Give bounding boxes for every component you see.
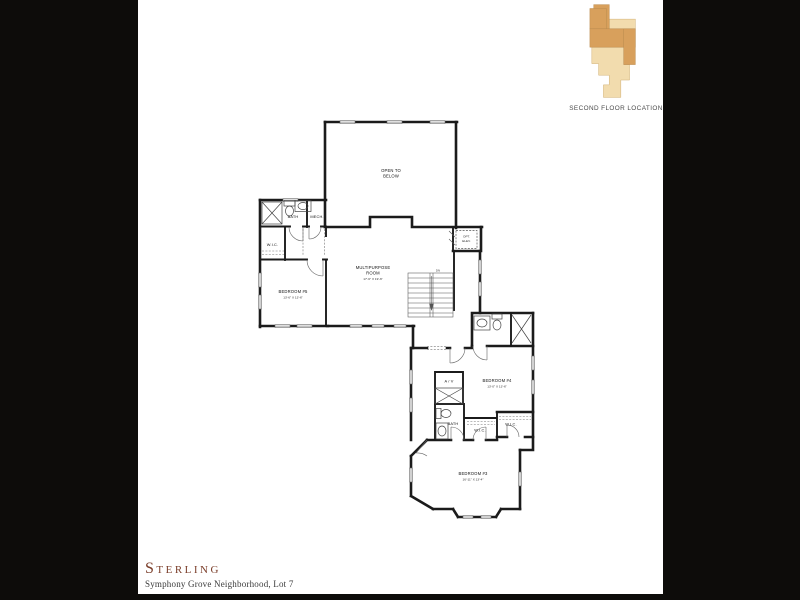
stairs-dn-label: DN [436, 269, 440, 273]
room-dim-bedroom5: 13'-6" X 13'-6" [283, 296, 303, 300]
interior-walls [260, 200, 511, 440]
room-label-bath-lower: BATH [448, 421, 459, 426]
floor-plan: OPEN TO BELOW BATH MECH. W.I.C. BEDROOM … [245, 110, 545, 530]
sink-icon [295, 201, 311, 212]
second-floor-location-key: SECOND FLOOR LOCATION [548, 2, 684, 112]
room-label-av: A / V [445, 379, 454, 384]
toilet-icon [492, 314, 502, 319]
exterior-walls [260, 122, 533, 517]
room-label-bath-upper: BATH [288, 214, 299, 219]
plan-subtitle: Symphony Grove Neighborhood, Lot 7 [145, 579, 294, 589]
room-dim-bedroom4: 13'-0" X 13'-6" [487, 385, 507, 389]
location-key-map [587, 2, 645, 102]
room-dim-bedroom3: 16'-11" X 13'-4" [462, 478, 483, 482]
room-label-open-to-below-2: BELOW [383, 174, 399, 179]
room-label-bedroom4: BEDROOM #4 [483, 378, 512, 383]
room-label-multipurpose-2: ROOM [366, 271, 380, 276]
title-block: Sterling Symphony Grove Neighborhood, Lo… [145, 560, 294, 589]
room-label-bedroom5: BEDROOM #5 [279, 289, 308, 294]
fixtures [262, 201, 531, 440]
room-label-open-to-below: OPEN TO [381, 168, 401, 173]
toilet-icon [436, 409, 441, 419]
room-label-opt-elev: OPT. [463, 235, 470, 239]
sink-icon [474, 316, 490, 330]
room-label-wic-bedroom4: W.I.C. [505, 422, 517, 427]
room-label-wic-upper: W.I.C. [267, 242, 279, 247]
shower-icon [512, 315, 531, 343]
room-dim-multipurpose: 17'-6" X 19'-6" [363, 277, 383, 281]
stairs [408, 273, 453, 317]
room-label-multipurpose: MULTIPURPOSE [356, 265, 391, 270]
room-label-opt-elev-2: ELEV. [462, 239, 471, 243]
room-label-bedroom3: BEDROOM #3 [459, 471, 488, 476]
plan-sheet: SECOND FLOOR LOCATION [138, 0, 663, 594]
plan-name: Sterling [145, 560, 294, 578]
room-label-mech: MECH. [310, 214, 323, 219]
room-label-wic-bedroom3: W.I.C. [474, 428, 486, 433]
windows [259, 121, 535, 519]
location-key-caption: SECOND FLOOR LOCATION [548, 105, 684, 112]
